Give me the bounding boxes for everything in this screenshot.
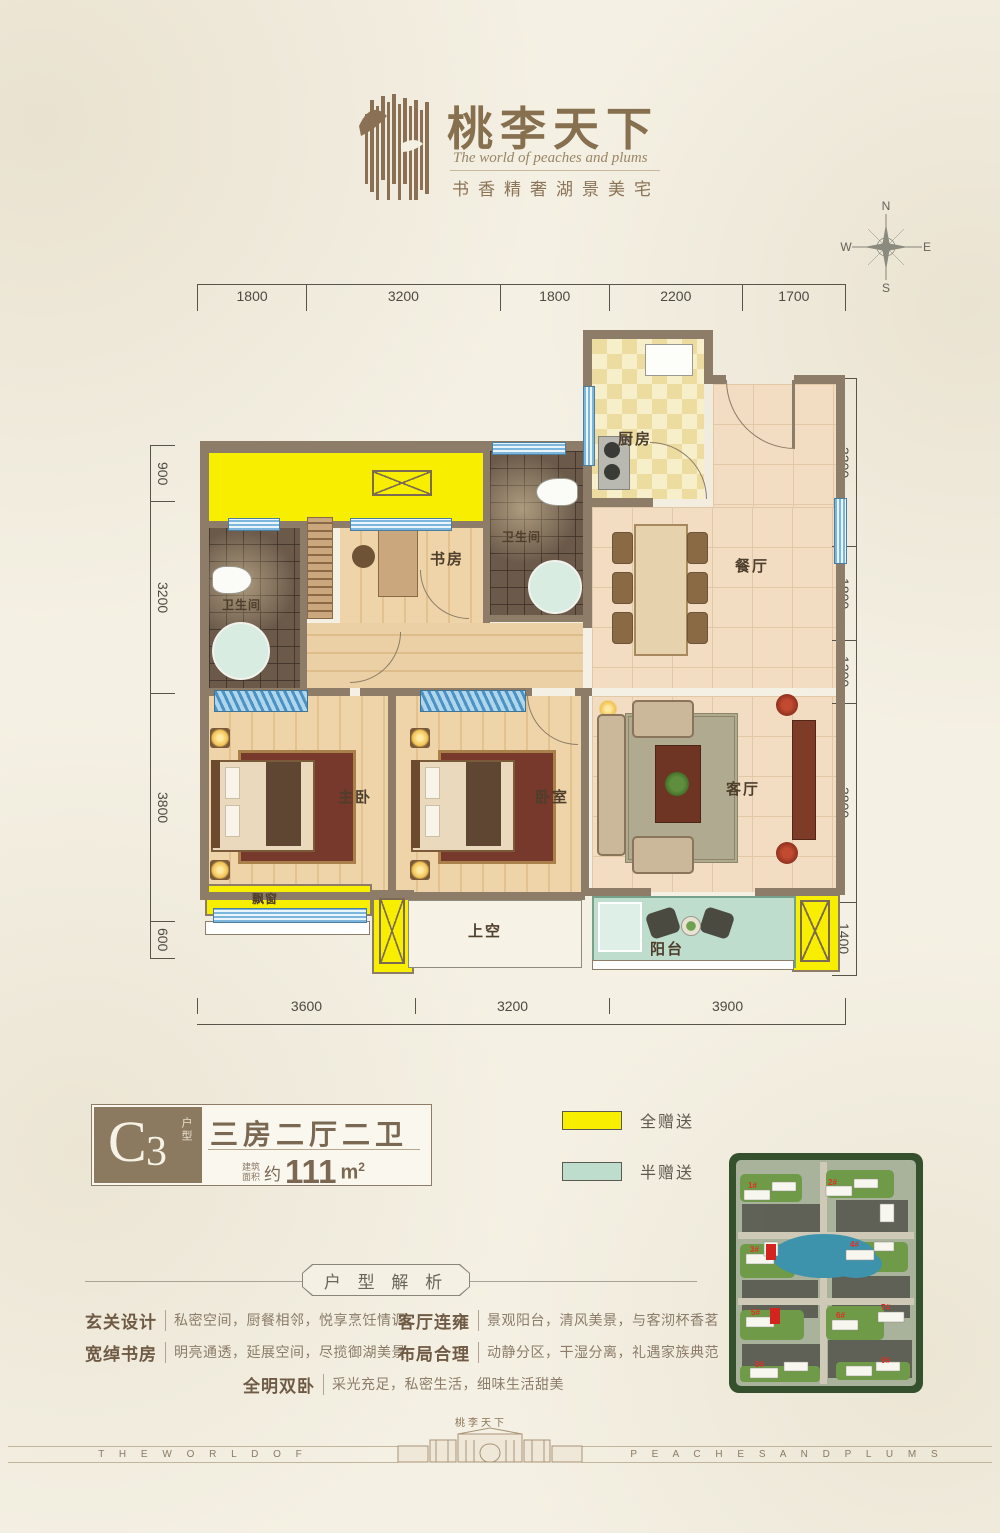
area-label-bottom: 面积 [242,1172,260,1182]
dim-value: 1800 [197,285,306,311]
analysis-item-text: 采光充足，私密生活，细味生活甜美 [332,1372,564,1397]
site-building-label: 2# [828,1178,837,1187]
window-sill [592,960,794,970]
window [583,386,595,466]
room-label-void: 上空 [468,920,502,941]
unit-code-box: C 3 户型 [94,1107,202,1183]
analysis-item-label: 客厅连雍 [398,1308,470,1333]
room-label-living: 客厅 [726,778,760,799]
dimension-top: 1800 3200 1800 2200 1700 [197,284,846,311]
room-label-bath2: 卫生间 [502,528,541,545]
dim-value: 1800 [500,285,609,311]
wall [583,330,713,339]
dim-value: 600 [151,921,175,958]
analysis-item-separator [165,1342,166,1363]
unit-area-label: 建筑 面积 [242,1162,260,1182]
wall [200,892,405,900]
window-sill [205,921,370,935]
analysis-item: 玄关设计 私密空间，厨餐相邻，悦享烹饪情调 [85,1308,406,1333]
unit-code-letter: C [108,1113,147,1171]
dimension-bottom: 3600 3200 3900 [197,998,846,1025]
room-label-bay-window: 飘窗 [252,890,278,907]
window [213,908,367,923]
brand-logo-icon [357,92,435,200]
dim-value: 3200 [415,998,609,1014]
dining-chair [687,532,708,564]
tv-cabinet [792,720,816,840]
footer-band-left: T H E W O R L D O F [8,1446,398,1463]
wall [583,498,592,628]
bed-throw [466,762,501,846]
column-box [372,470,432,496]
wall [583,498,653,507]
stove-burner [604,464,620,480]
bed-throw [266,762,301,846]
shower [528,560,582,614]
headboard [411,760,420,848]
wall [755,888,840,896]
lamp [411,861,429,879]
armchair [632,836,694,874]
pillow [425,767,440,799]
analysis-item-text: 明亮通透，延展空间，尽揽御湖美景 [174,1340,406,1365]
compass-w: W [840,240,852,254]
window [492,442,566,455]
dining-table [634,524,688,656]
plant [776,842,798,864]
analysis-item-text: 动静分区，干湿分离，礼遇家族典范 [487,1340,719,1365]
legend-label-half: 半赠送 [640,1159,694,1183]
area-label-top: 建筑 [242,1162,260,1172]
sofa [597,714,626,856]
site-building-label: 7# [881,1303,890,1312]
room-label-bedroom: 卧室 [535,786,569,807]
armchair [632,700,694,738]
poster-page: 桃李天下 The world of peaches and plums 书香精奢… [0,0,1000,1533]
shower [212,622,270,680]
window [834,498,847,564]
unit-area: 建筑 面积 约 111 m2 [242,1153,365,1191]
unit-code-tag: 户型 [178,1117,194,1143]
wall [704,375,726,384]
footer-left-text: T H E W O R L D O F [98,1449,308,1460]
wall [483,441,490,623]
legend-row: 半赠送 [562,1159,694,1183]
column-box [379,898,405,964]
legend-swatch-full [562,1111,622,1130]
lamp [211,861,229,879]
site-building-label: 5# [751,1308,760,1317]
pillow [425,805,440,837]
analysis-item-separator [165,1310,166,1331]
site-building-label: 4# [850,1240,859,1249]
analysis-heading: 户 型 解 析 [324,1268,448,1293]
room-label-kitchen: 厨房 [618,428,652,449]
legend-label-full: 全赠送 [640,1108,694,1132]
dining-chair [687,612,708,644]
wall [836,375,845,895]
wall [581,688,589,896]
compass-e: E [923,240,931,254]
legend-swatch-half [562,1162,622,1181]
site-plan-map: 1# 2# 3# 4# 5# 6# 7# 8# 9# [728,1152,924,1394]
wall [300,527,307,688]
analysis-item-label: 布局合理 [398,1340,470,1365]
dim-value: 1700 [742,285,845,311]
analysis-item-label: 玄关设计 [85,1308,157,1333]
unit-area-approx: 约 [264,1160,281,1185]
analysis-item-separator [323,1374,324,1395]
gift-zone-top-band [205,451,487,528]
table-plant [665,772,689,796]
dim-value: 3200 [306,285,500,311]
analysis-item: 全明双卧 采光充足，私密生活，细味生活甜美 [243,1372,564,1397]
wall [581,888,651,896]
analysis-item-separator [478,1310,479,1331]
brand-subtitle-en: The world of peaches and plums [453,150,648,167]
legend-row: 全赠送 [562,1108,694,1132]
site-building-label: 3# [750,1245,759,1254]
dim-value: 3900 [609,998,845,1014]
column-box [800,900,830,962]
wall [483,615,592,622]
headboard [211,760,220,848]
unit-badge: C 3 户型 三房二厅二卫 建筑 面积 约 111 m2 [91,1104,432,1186]
brand-tagline: 书香精奢湖景美宅 [452,175,660,200]
kitchen-sink [645,344,693,376]
window [350,518,452,531]
room-label-master: 主卧 [338,786,372,807]
compass-icon: N S W E [838,198,934,294]
brand-divider [450,170,660,171]
lamp [411,729,429,747]
dim-value: 3800 [151,693,175,921]
desk-chair [352,545,375,568]
analysis-heading-frame: 户 型 解 析 [302,1264,470,1296]
footer-gate-illustration [396,1426,584,1464]
compass-s: S [882,281,890,294]
unit-divider [208,1149,420,1150]
room-label-bath1: 卫生间 [222,596,261,613]
dim-value: 2200 [609,285,742,311]
toilet [212,566,252,594]
unit-layout: 三房二厅二卫 [210,1113,408,1153]
analysis-item-label: 宽绰书房 [85,1340,157,1365]
dim-value: 900 [151,445,175,501]
unit-area-value: 111 [285,1153,336,1191]
site-building-label: 9# [881,1356,890,1365]
wall [388,688,396,896]
unit-area-unit: m2 [340,1160,364,1185]
room-label-balcony: 阳台 [650,938,684,959]
bookshelf [307,517,333,619]
analysis-item: 布局合理 动静分区，干湿分离，礼遇家族典范 [398,1340,719,1365]
wall [200,441,209,896]
dining-chair [687,572,708,604]
analysis-item-separator [478,1342,479,1363]
site-building-label: 6# [836,1311,845,1320]
pillow [225,767,240,799]
window [228,518,280,531]
lamp [211,729,229,747]
balcony-table [681,916,701,936]
wall [405,892,585,900]
analysis-item-text: 私密空间，厨餐相邻，悦享烹饪情调 [174,1308,406,1333]
window [214,690,308,712]
desk [378,523,418,597]
site-building-label: 8# [755,1360,764,1369]
window [420,690,526,712]
dim-value: 3200 [151,501,175,694]
plant [776,694,798,716]
compass-n: N [882,199,891,213]
legend: 全赠送 半赠送 [562,1108,694,1183]
dining-chair [612,612,633,644]
unit-area-sup: 2 [358,1160,365,1174]
footer-band-right: P E A C H E S A N D P L U M S [582,1446,992,1463]
dim-value: 3600 [197,998,415,1014]
dining-chair [612,572,633,604]
analysis-item-text: 景观阳台，清风美景，与客沏杯香茗 [487,1308,719,1333]
analysis-item-label: 全明双卧 [243,1372,315,1397]
site-building-label: 1# [748,1181,757,1190]
washing-machine [598,902,642,952]
room-label-dining: 餐厅 [735,555,769,576]
corridor-floor [307,623,583,688]
analysis-item: 客厅连雍 景观阳台，清风美景，与客沏杯香茗 [398,1308,719,1333]
footer-right-text: P E A C H E S A N D P L U M S [630,1449,943,1460]
unit-code-digit: 3 [146,1131,167,1173]
dimension-left: 900 3200 3800 600 [150,445,175,959]
dining-chair [612,532,633,564]
room-label-study: 书房 [430,548,464,569]
pillow [225,805,240,837]
analysis-item: 宽绰书房 明亮通透，延展空间，尽揽御湖美景 [85,1340,406,1365]
toilet [536,478,578,506]
